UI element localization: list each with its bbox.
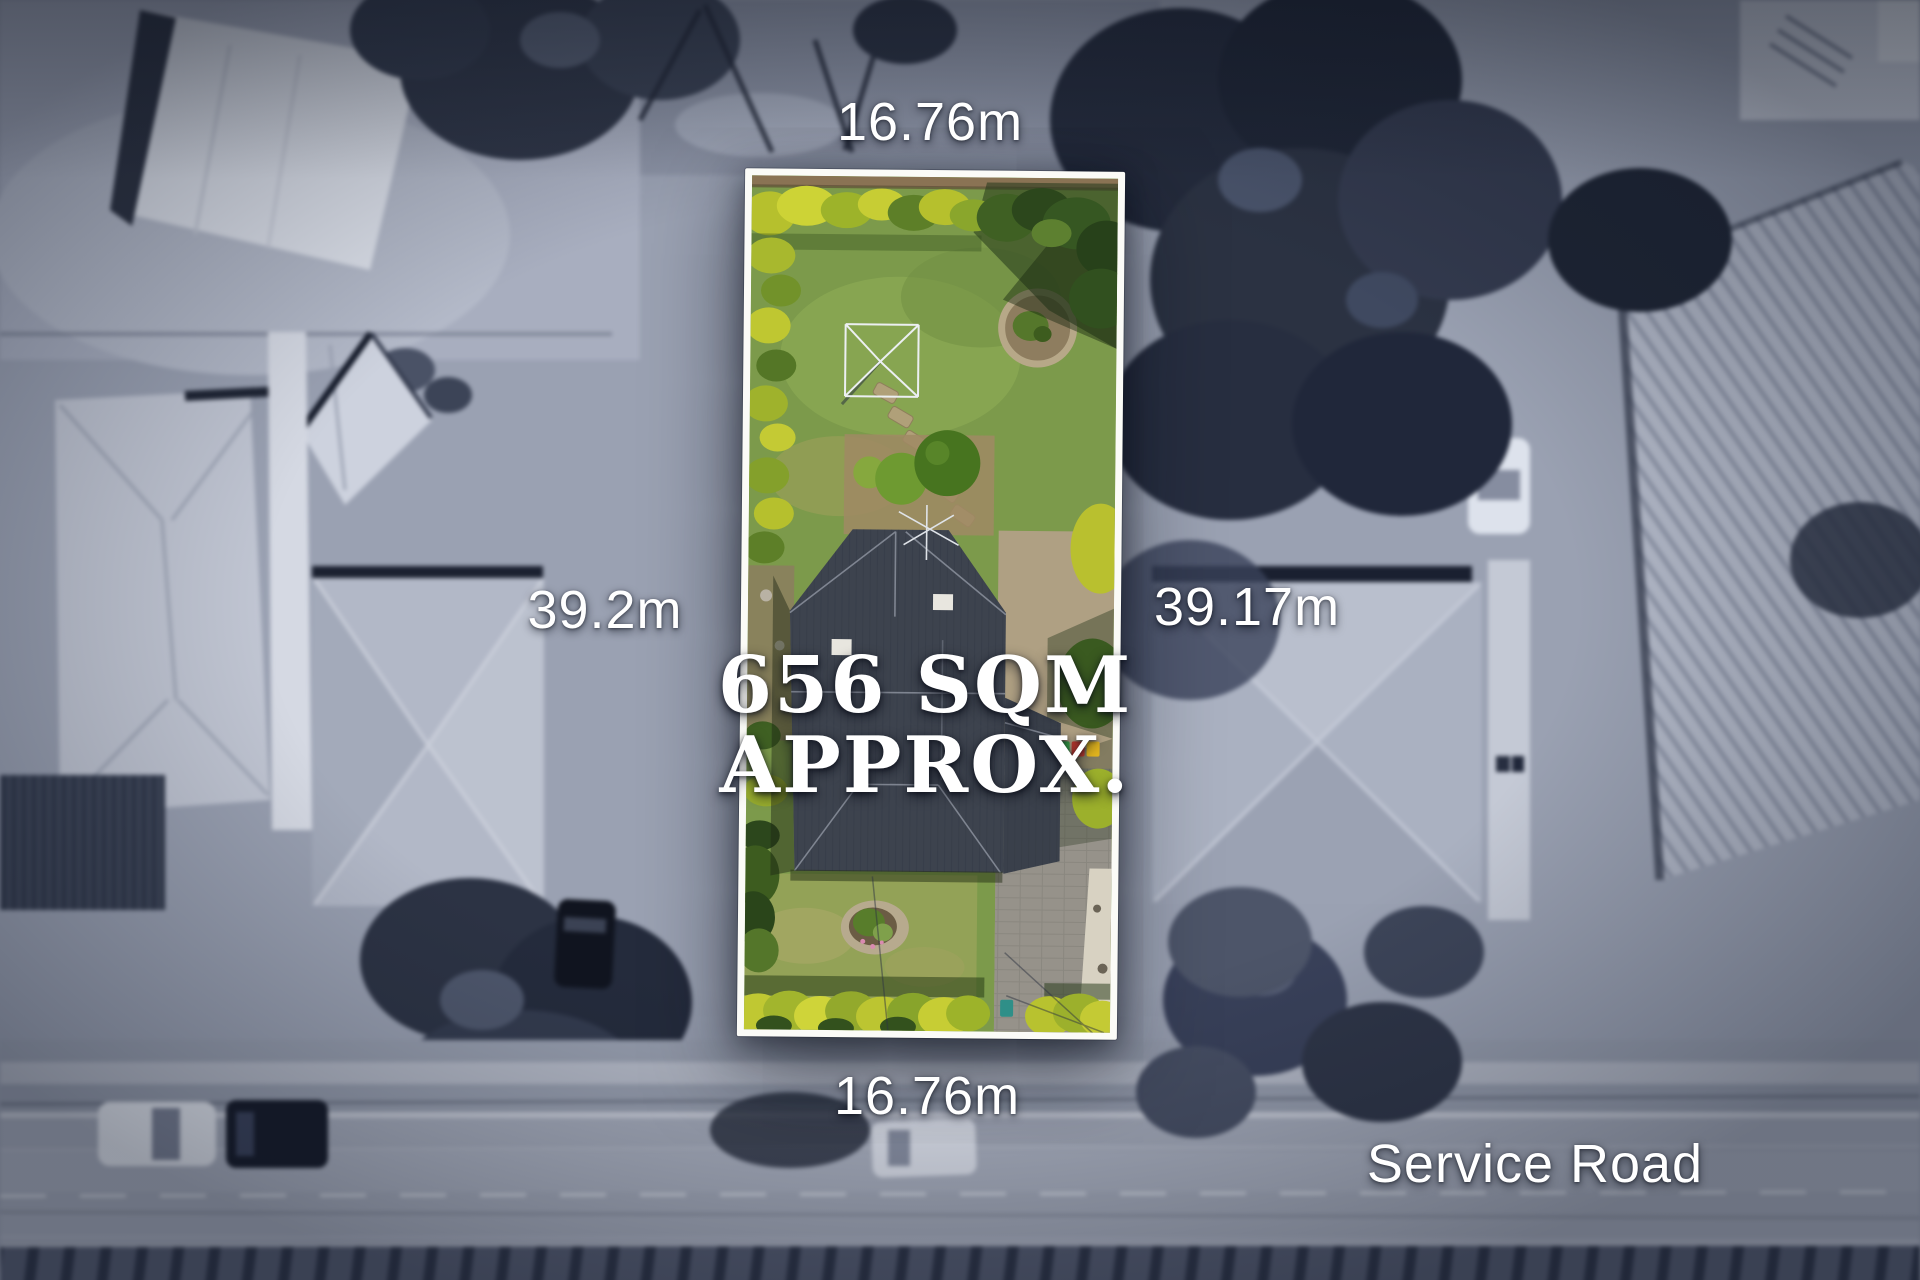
- area-label: 656 SQM APPROX.: [718, 646, 1133, 806]
- real-estate-aerial-image: 16.76m 39.2m 39.17m 16.76m 656 SQM APPRO…: [0, 0, 1920, 1280]
- area-label-line2: APPROX.: [718, 726, 1133, 806]
- property-boundary: [737, 168, 1125, 1040]
- dimension-label-right-length: 39.17m: [1154, 576, 1340, 638]
- property-aerial-photo: [744, 175, 1118, 1032]
- area-label-line1: 656 SQM: [718, 646, 1133, 726]
- road-name-label: Service Road: [1367, 1133, 1703, 1195]
- dimension-label-left-length: 39.2m: [527, 579, 682, 641]
- dimension-label-top-width: 16.76m: [837, 91, 1023, 153]
- dimension-label-bottom-width: 16.76m: [834, 1065, 1020, 1127]
